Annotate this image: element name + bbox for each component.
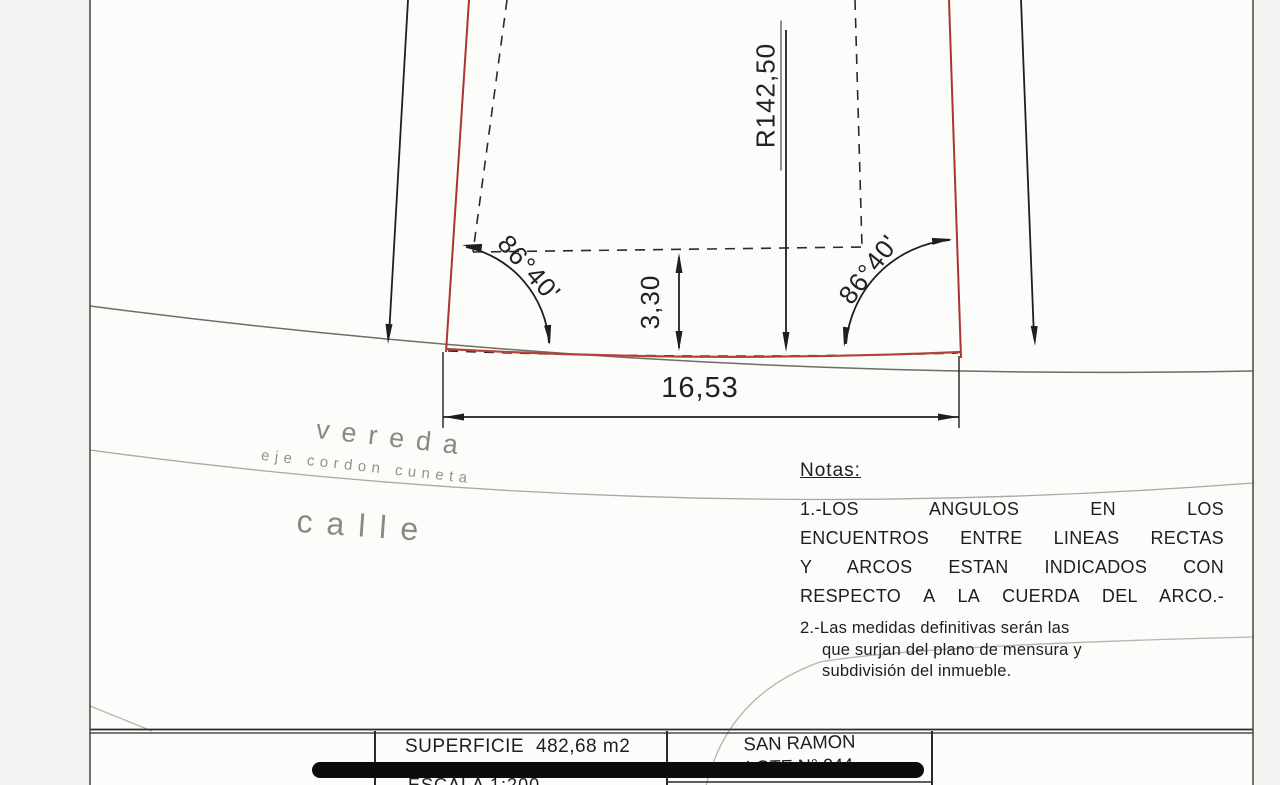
note-1-line: ENCUENTROS ENTRE LINEAS RECTAS — [800, 524, 1224, 553]
note-1: 1.-LOS ANGULOS EN LOS ENCUENTROS ENTRE L… — [800, 495, 1224, 611]
note-1-line: 1.-LOS ANGULOS EN LOS — [800, 495, 1224, 524]
survey-plan-page: R142,50 3,30 16,53 86°40' 86°40' vereda … — [0, 0, 1280, 785]
frontage-dimension-label: 16,53 — [620, 372, 780, 405]
superficie-label: SUPERFICIE — [405, 736, 524, 758]
offset-dimension-label: 3,30 — [636, 257, 664, 347]
dimension-lines — [389, 0, 1034, 428]
note-2-line: subdivisión del inmueble. — [800, 661, 1224, 683]
superficie-value: 482,68 m2 — [536, 736, 630, 758]
note-2-line: que surjan del plano de mensura y — [800, 640, 1224, 662]
setback-dashed-lines — [448, 0, 958, 356]
note-1-line: Y ARCOS ESTAN INDICADOS CON — [800, 553, 1224, 582]
redaction-bar — [312, 762, 924, 778]
street-edge-curve — [90, 306, 1253, 372]
notes-title: Notas: — [800, 460, 1224, 482]
radius-dimension-label: R142,50 — [751, 21, 782, 171]
corner-curve-left — [90, 706, 152, 731]
lot-boundary-red — [446, 0, 961, 358]
note-2: 2.-Las medidas definitivas serán las que… — [800, 618, 1224, 683]
note-2-line: 2.-Las medidas definitivas serán las — [800, 618, 1224, 640]
note-1-line: RESPECTO A LA CUERDA DEL ARCO.- — [800, 582, 1224, 611]
notes-block: Notas: 1.-LOS ANGULOS EN LOS ENCUENTROS … — [800, 460, 1224, 683]
